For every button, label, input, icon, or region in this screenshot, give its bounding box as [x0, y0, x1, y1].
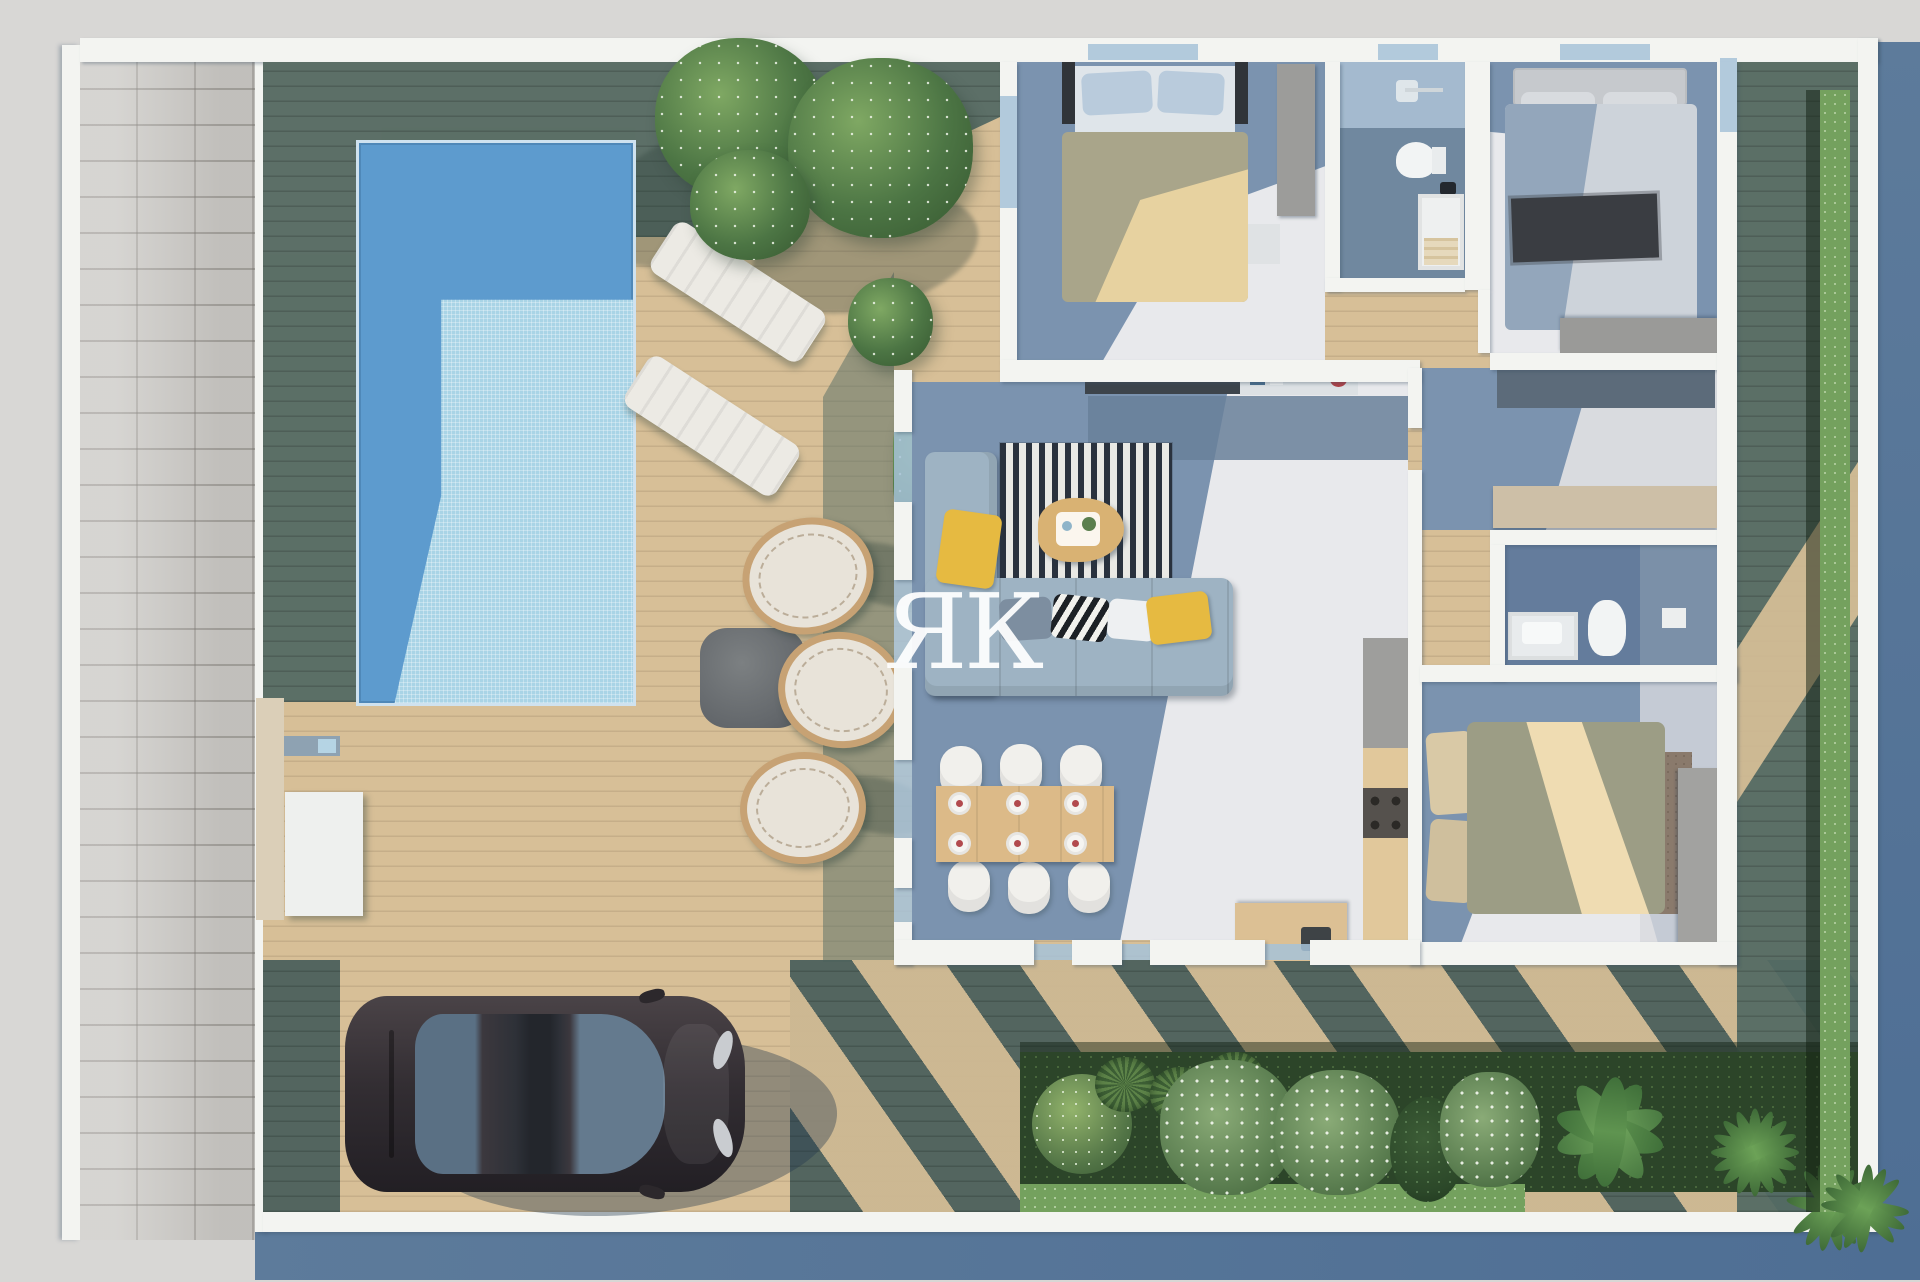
dining-chair-5: [1008, 862, 1050, 914]
bed-3-duvet: [1467, 722, 1665, 914]
wall-living-south-a: [894, 940, 1034, 965]
wall-bath1-south: [1325, 278, 1465, 292]
bed-1-headboard-post-left: [1062, 62, 1075, 124]
dining-table: [936, 786, 1114, 862]
bedroom2-north-window: [1560, 44, 1650, 60]
entrance-gate: [284, 736, 340, 756]
wall-living-south-b: [1072, 940, 1122, 965]
kitchen-counter-wood: [1363, 748, 1408, 942]
bath1-north-window: [1378, 44, 1438, 60]
wall-bed2-south: [1490, 353, 1737, 370]
wall-living-south-d: [1310, 940, 1420, 965]
swimming-pool: [356, 140, 636, 706]
place-setting-4: [948, 832, 971, 855]
plot-shadow-bottom: [255, 1232, 1920, 1280]
bedroom-2-dresser: [1560, 318, 1717, 353]
wall-bath2-bed3: [1420, 665, 1737, 682]
kitchen-cooktop: [1363, 788, 1408, 838]
pillar-west-2: [894, 502, 912, 580]
bed-2-duvet: [1505, 104, 1697, 330]
hallway-sideboard: [1493, 486, 1717, 528]
toilet-2: [1588, 600, 1626, 656]
bedroom-3-wardrobe: [1678, 768, 1718, 946]
dining-chair-4: [948, 860, 990, 912]
terrace-bush: [848, 278, 933, 366]
pillow-yellow-2: [1145, 590, 1212, 645]
boundary-wall-right: [1858, 38, 1878, 1232]
tree-3: [690, 150, 810, 260]
garden-bed: [1020, 1052, 1858, 1212]
side-hedge: [1820, 90, 1850, 1212]
car: [345, 988, 747, 1206]
wall-bed2-west-lower: [1478, 290, 1490, 353]
kitchen-counter-upper: [1363, 638, 1408, 748]
watermark-logo: ЯК: [872, 572, 1052, 702]
place-setting-6: [1064, 832, 1087, 855]
bed-2-dark-throw: [1511, 193, 1659, 262]
banana-plant: [1520, 1052, 1700, 1212]
storage-structure: [285, 792, 363, 916]
boundary-wall-bottom: [263, 1212, 1878, 1232]
bed-1-headboard-post-right: [1235, 62, 1248, 124]
path-outer-wall: [62, 45, 80, 1240]
wall-bath1-bed2: [1465, 62, 1490, 290]
entrance-pillar: [256, 698, 284, 920]
wall-bath2-west: [1490, 545, 1505, 680]
wall-house-east: [1717, 62, 1737, 965]
bath-2-box: [1662, 608, 1686, 628]
place-setting-3: [1064, 792, 1087, 815]
grass-clump-1: [1095, 1057, 1155, 1112]
car-body: [345, 996, 745, 1192]
bed-1: [1062, 62, 1248, 302]
stage: ЯК: [0, 0, 1920, 1280]
bathroom-2-floor-lit: [1640, 545, 1717, 665]
bath-2-basin: [1522, 622, 1562, 644]
plot-shadow-right: [1878, 42, 1920, 1280]
coffee-table-tray: [1056, 512, 1100, 546]
wall-bed3-south: [1420, 942, 1737, 965]
bedroom-1-nightstand: [1246, 224, 1280, 264]
tree-2: [788, 58, 973, 238]
bed-3-duvet-lit: [1467, 722, 1665, 914]
gate-handle: [318, 739, 336, 753]
wall-bed1-south: [1000, 360, 1420, 382]
car-trunk-line: [389, 1030, 394, 1158]
wall-living-south-c: [1150, 940, 1265, 965]
dining-chair-6: [1068, 861, 1110, 913]
wall-hall-bath2: [1490, 530, 1717, 545]
bath-2-vanity: [1508, 612, 1578, 660]
wall-living-east-b: [1408, 470, 1422, 965]
pillar-west-4: [894, 838, 912, 888]
hallway-rug: [1497, 370, 1715, 408]
pillar-west-1: [894, 370, 912, 432]
shower-arm-1: [1405, 88, 1443, 92]
bedroom1-north-window: [1088, 44, 1198, 60]
pool-shallow-mosaic: [359, 143, 633, 703]
car-cabin: [415, 1014, 665, 1174]
wall-bed1-bath1: [1325, 62, 1340, 290]
bed-1-pillow-right: [1157, 70, 1225, 115]
toilet-1-tank: [1432, 147, 1446, 174]
toilet-1: [1396, 142, 1436, 178]
stone-path: [80, 45, 255, 1240]
bedroom-1-wardrobe: [1277, 64, 1315, 216]
bed-1-pillow-left: [1081, 70, 1153, 116]
corner-palm: [1795, 1140, 1920, 1275]
wall-living-east-a: [1408, 368, 1422, 428]
tray-cup: [1062, 521, 1072, 531]
bed-1-duvet-lit: [1062, 132, 1248, 302]
place-setting-1: [948, 792, 971, 815]
bedroom2-east-window: [1720, 58, 1737, 132]
place-setting-2: [1006, 792, 1029, 815]
pillow-chevron: [1050, 593, 1110, 643]
bed-1-duvet: [1062, 132, 1248, 302]
flowering-shrub-2: [1275, 1070, 1400, 1195]
bath-1-towels: [1424, 238, 1458, 265]
bed-2: [1505, 68, 1697, 330]
bedroom1-west-window: [1000, 96, 1017, 208]
bed-3: [1425, 718, 1667, 918]
place-setting-5: [1006, 832, 1029, 855]
tray-plant: [1082, 517, 1096, 531]
car-mirror-top: [638, 987, 666, 1005]
